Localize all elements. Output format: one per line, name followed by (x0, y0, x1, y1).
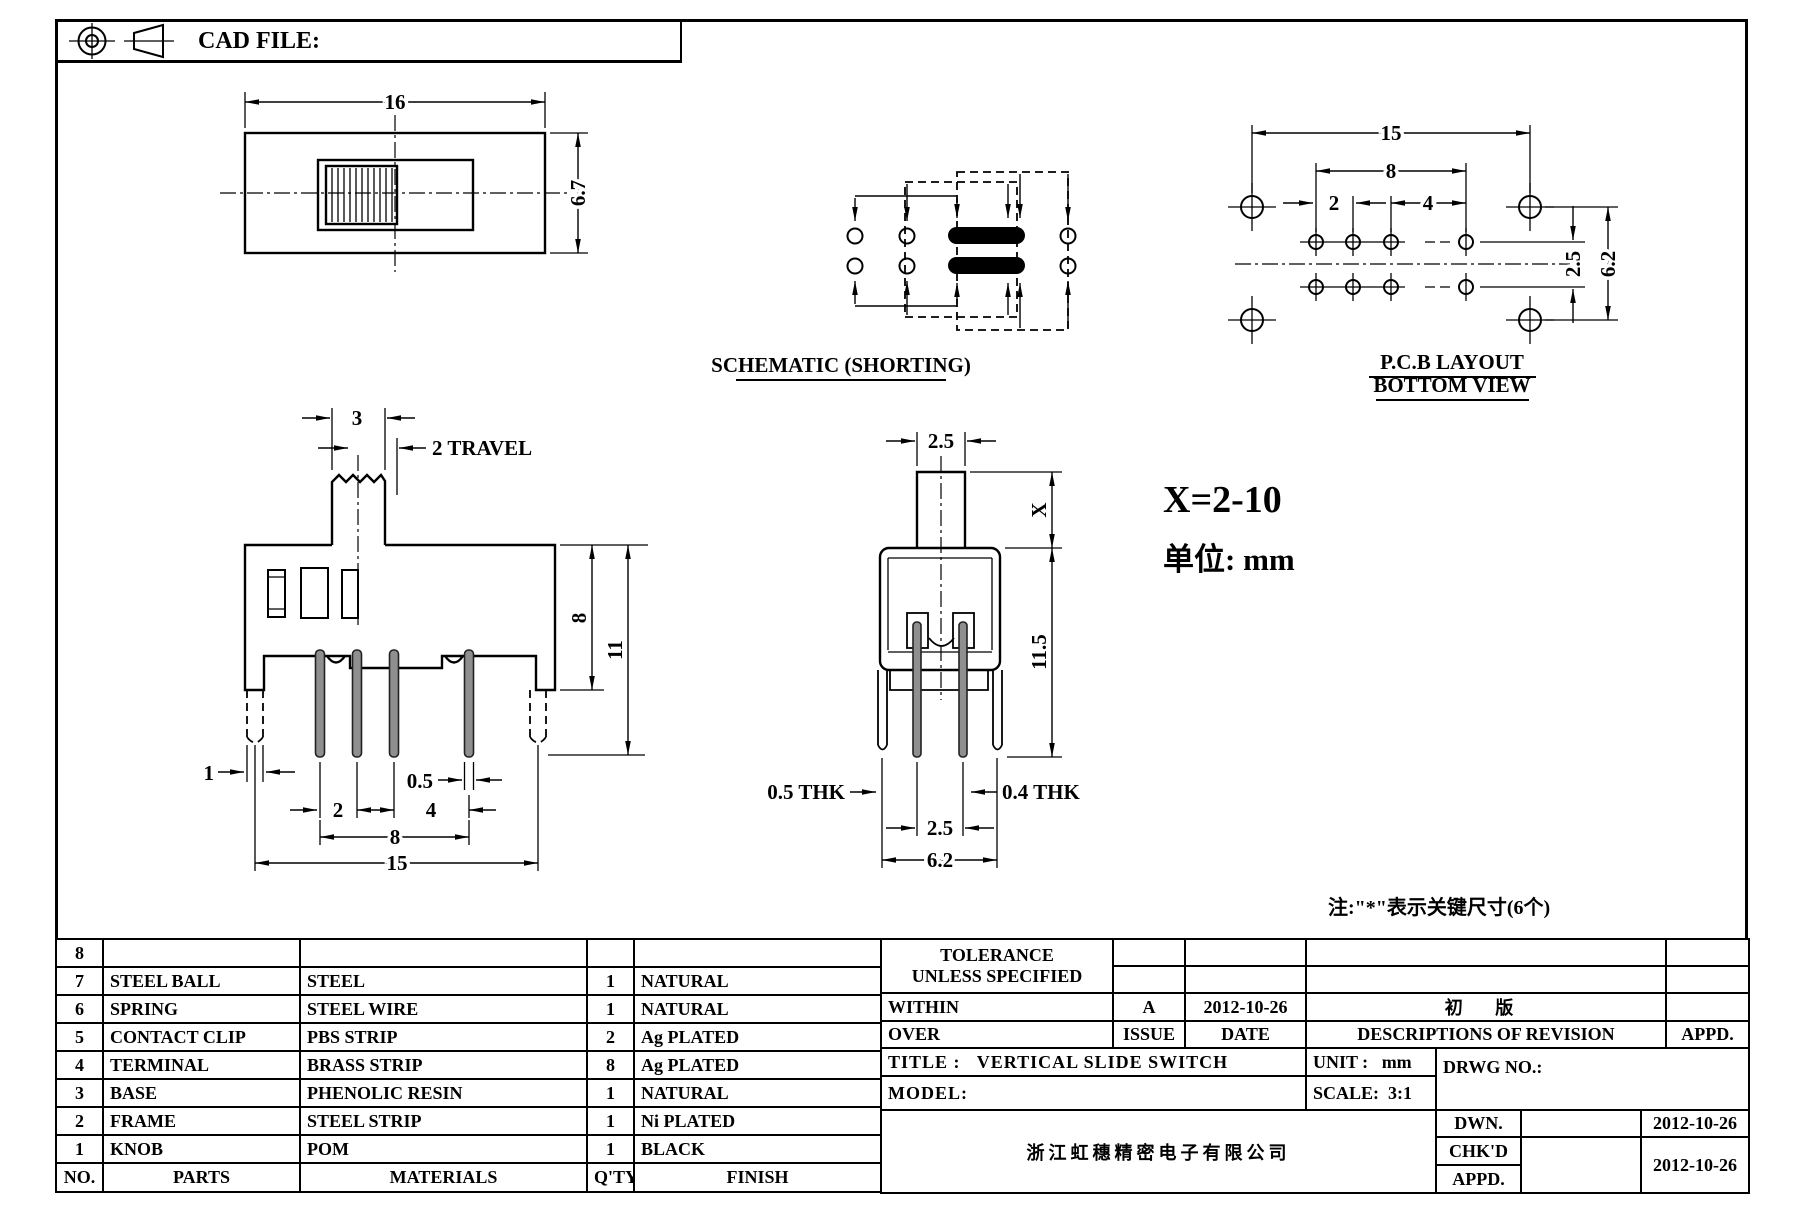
part-finish: Ag PLATED (634, 1023, 881, 1051)
part-qty: 1 (587, 1079, 634, 1107)
drwg-no-label: DRWG NO.: (1443, 1057, 1542, 1077)
tolerance-header: TOLERANCE UNLESS SPECIFIED (881, 939, 1113, 993)
dim-side-pin-pitch: 2.5 (927, 816, 953, 840)
dim-pcb-pitch-a: 2 (1329, 191, 1340, 215)
dim-front-span: 8 (390, 825, 401, 849)
part-finish: Ag PLATED (634, 1051, 881, 1079)
top-view: 16 6.7 (220, 90, 590, 272)
issue-empty-cell (1113, 939, 1185, 966)
note-key-dimensions: 注:"*"表示关键尺寸(6个) (1328, 895, 1550, 919)
part-qty: 1 (587, 967, 634, 995)
drwg-no-cell: DRWG NO.: (1436, 1048, 1749, 1110)
note-unit: 单位: mm (1163, 542, 1295, 577)
schematic-caption: SCHEMATIC (SHORTING) (711, 353, 971, 377)
part-name: CONTACT CLIP (103, 1023, 300, 1051)
revision-label: DESCRIPTIONS OF REVISION (1306, 1021, 1666, 1048)
dim-side-stem-width: 2.5 (928, 429, 954, 453)
appd-empty-cell (1666, 993, 1749, 1021)
note-x-range: X=2-10 (1163, 479, 1282, 521)
appd-label: APPD. (1666, 1021, 1749, 1048)
table-row: 2 FRAME STEEL STRIP 1 Ni PLATED (56, 1107, 881, 1135)
table-row: 3 BASE PHENOLIC RESIN 1 NATURAL (56, 1079, 881, 1107)
cad-file-box: CAD FILE: (184, 19, 682, 63)
part-name: FRAME (103, 1107, 300, 1135)
dwn-date: 2012-10-26 (1641, 1110, 1749, 1137)
chkd-appd-signature-cell (1521, 1137, 1641, 1193)
part-name (103, 939, 300, 967)
part-no: 5 (56, 1023, 103, 1051)
parts-table: 8 7 STEEL BALL STEEL 1 NATURAL 6 SPRING … (55, 938, 882, 1193)
cad-file-label: CAD FILE: (198, 28, 320, 55)
date-empty-cell (1185, 966, 1306, 993)
dim-pcb-pitch-b: 4 (1423, 191, 1434, 215)
table-header-row: NO. PARTS MATERIALS Q'TY FINISH (56, 1163, 881, 1192)
title-block: TOLERANCE UNLESS SPECIFIED WITHIN A 2012… (880, 938, 1750, 1194)
dim-top-width: 16 (385, 90, 406, 114)
part-material: STEEL WIRE (300, 995, 587, 1023)
part-qty (587, 939, 634, 967)
within-label: WITHIN (881, 993, 1113, 1021)
table-row: 7 STEEL BALL STEEL 1 NATURAL (56, 967, 881, 995)
dwn-signature-cell (1521, 1110, 1641, 1137)
part-finish: NATURAL (634, 995, 881, 1023)
drawing-canvas: 16 6.7 (55, 63, 1746, 938)
appd-empty-cell (1666, 966, 1749, 993)
col-header-no: NO. (56, 1163, 103, 1192)
col-header-parts: PARTS (103, 1163, 300, 1192)
col-header-finish: FINISH (634, 1163, 881, 1192)
issue-value: A (1113, 993, 1185, 1021)
part-no: 4 (56, 1051, 103, 1079)
third-angle-projection-icon (62, 21, 180, 61)
date-label: DATE (1185, 1021, 1306, 1048)
part-name: TERMINAL (103, 1051, 300, 1079)
pcb-layout-view: 15 8 2 4 2.5 6.2 P.C.B LAYOUT BOTTOM VIE… (1228, 121, 1620, 400)
table-row: 5 CONTACT CLIP PBS STRIP 2 Ag PLATED (56, 1023, 881, 1051)
title-cell: TITLE : VERTICAL SLIDE SWITCH (881, 1048, 1306, 1076)
scale-label: SCALE: (1313, 1083, 1379, 1103)
tolerance-line2: UNLESS SPECIFIED (888, 966, 1106, 987)
part-finish: BLACK (634, 1135, 881, 1163)
part-material: PBS STRIP (300, 1023, 587, 1051)
part-name: KNOB (103, 1135, 300, 1163)
drawing-sheet: CAD FILE: (0, 0, 1811, 1207)
part-qty: 1 (587, 1135, 634, 1163)
title-label: TITLE : (888, 1052, 961, 1072)
dwn-label: DWN. (1436, 1110, 1521, 1137)
part-material (300, 939, 587, 967)
date-value: 2012-10-26 (1185, 993, 1306, 1021)
part-no: 6 (56, 995, 103, 1023)
part-no: 2 (56, 1107, 103, 1135)
model-label: MODEL: (888, 1083, 968, 1103)
dim-front-total-height: 11 (603, 640, 627, 660)
model-cell: MODEL: (881, 1076, 1306, 1110)
pcb-caption-line2: BOTTOM VIEW (1373, 373, 1530, 397)
part-no: 7 (56, 967, 103, 995)
front-view: 3 2 TRAVEL 8 11 1 0.5 (204, 406, 649, 875)
part-finish: NATURAL (634, 967, 881, 995)
dim-front-travel: 2 TRAVEL (432, 436, 532, 460)
part-qty: 8 (587, 1051, 634, 1079)
company-name: 浙江虹穗精密电子有限公司 (881, 1110, 1436, 1193)
dim-front-pitch-a: 2 (333, 798, 344, 822)
part-qty: 1 (587, 1107, 634, 1135)
chkd-appd-date: 2012-10-26 (1641, 1137, 1749, 1193)
dim-pcb-span: 8 (1386, 159, 1397, 183)
part-finish: Ni PLATED (634, 1107, 881, 1135)
dim-front-overall: 15 (387, 851, 408, 875)
side-view: 2.5 X 11.5 0.5 THK 0.4 THK 2.5 6.2 (767, 429, 1080, 872)
table-row: 6 SPRING STEEL WIRE 1 NATURAL (56, 995, 881, 1023)
part-qty: 2 (587, 1023, 634, 1051)
unit-label: UNIT : (1313, 1052, 1368, 1072)
chkd-label: CHK'D (1436, 1137, 1521, 1165)
dim-pcb-height: 6.2 (1596, 251, 1620, 277)
part-finish: NATURAL (634, 1079, 881, 1107)
table-row: 4 TERMINAL BRASS STRIP 8 Ag PLATED (56, 1051, 881, 1079)
table-row: 8 (56, 939, 881, 967)
dim-pcb-overall: 15 (1381, 121, 1402, 145)
label-thk-left: 0.5 THK (767, 780, 845, 804)
part-finish (634, 939, 881, 967)
scale-cell: SCALE: 3:1 (1306, 1076, 1436, 1110)
part-qty: 1 (587, 995, 634, 1023)
col-header-materials: MATERIALS (300, 1163, 587, 1192)
part-name: SPRING (103, 995, 300, 1023)
dim-front-body-height: 8 (567, 613, 591, 624)
dim-front-pitch-b: 4 (426, 798, 437, 822)
title-value: VERTICAL SLIDE SWITCH (977, 1052, 1228, 1072)
issue-label: ISSUE (1113, 1021, 1185, 1048)
dim-front-pin-thk: 0.5 (407, 769, 433, 793)
part-no: 3 (56, 1079, 103, 1107)
appd-row-label: APPD. (1436, 1165, 1521, 1193)
dim-side-overall: 6.2 (927, 848, 953, 872)
part-material: BRASS STRIP (300, 1051, 587, 1079)
notes: X=2-10 单位: mm 注:"*"表示关键尺寸(6个) (1163, 479, 1550, 919)
part-material: PHENOLIC RESIN (300, 1079, 587, 1107)
schematic-view: SCHEMATIC (SHORTING) (711, 172, 1075, 380)
dim-side-height: 11.5 (1027, 634, 1051, 670)
col-header-qty: Q'TY (587, 1163, 634, 1192)
part-material: STEEL (300, 967, 587, 995)
part-name: BASE (103, 1079, 300, 1107)
part-no: 1 (56, 1135, 103, 1163)
dim-front-leg-width: 1 (204, 761, 215, 785)
date-empty-cell (1185, 939, 1306, 966)
projection-symbol-box (55, 19, 186, 63)
tolerance-line1: TOLERANCE (888, 945, 1106, 966)
revision-empty-cell (1306, 939, 1666, 966)
part-name: STEEL BALL (103, 967, 300, 995)
unit-value: mm (1382, 1052, 1412, 1072)
dim-pcb-row-pitch: 2.5 (1561, 251, 1585, 277)
dim-top-height: 6.7 (566, 180, 590, 206)
dim-front-knob-width: 3 (352, 406, 363, 430)
revision-empty-cell (1306, 966, 1666, 993)
label-thk-right: 0.4 THK (1002, 780, 1080, 804)
issue-empty-cell (1113, 966, 1185, 993)
table-row: 1 KNOB POM 1 BLACK (56, 1135, 881, 1163)
pcb-caption-line1: P.C.B LAYOUT (1380, 350, 1524, 374)
part-material: STEEL STRIP (300, 1107, 587, 1135)
unit-cell: UNIT : mm (1306, 1048, 1436, 1076)
revision-value: 初 版 (1306, 993, 1666, 1021)
part-material: POM (300, 1135, 587, 1163)
appd-empty-cell (1666, 939, 1749, 966)
dim-side-stem-height: X (1027, 502, 1051, 517)
scale-value: 3:1 (1388, 1083, 1412, 1103)
part-no: 8 (56, 939, 103, 967)
over-label: OVER (881, 1021, 1113, 1048)
